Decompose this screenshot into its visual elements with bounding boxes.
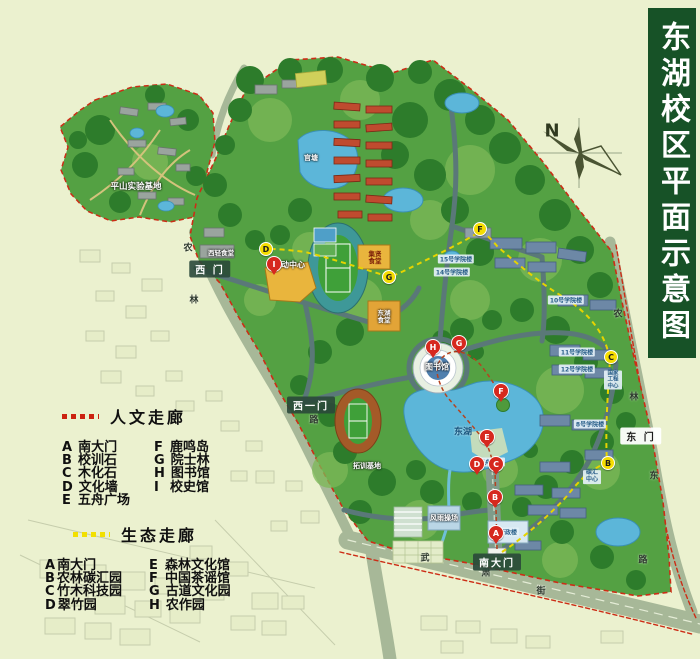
legend-humanities-col2: F鹿鸣岛 G院士林 H图书馆 I校史馆 bbox=[154, 441, 210, 507]
street-char-west: 林 bbox=[189, 293, 198, 306]
academic-building-label: 8号学院楼 bbox=[574, 420, 606, 429]
academic-building-label: 15号学院楼 bbox=[438, 255, 474, 264]
poster-title: 东湖校区平面示意图 bbox=[657, 21, 687, 345]
map-pin-red-H[interactable]: H bbox=[425, 339, 441, 355]
street-char-west: 路 bbox=[309, 413, 318, 426]
legend-item: E五舟广场 bbox=[62, 494, 154, 507]
street-char-west: 农 bbox=[183, 241, 192, 254]
street-char-south: 武 bbox=[420, 551, 429, 564]
academic-building-label: 11号学院楼 bbox=[559, 348, 595, 357]
windrain-ground-label: 风雨操场 bbox=[430, 513, 458, 523]
legend-item: C竹木科技园 bbox=[45, 585, 149, 598]
legend-item: D翠竹园 bbox=[45, 599, 149, 612]
title-banner: 东湖校区平面示意图 bbox=[648, 8, 696, 358]
ecology-dash-swatch bbox=[73, 532, 110, 537]
legend-item: D文化墙 bbox=[62, 481, 154, 494]
gate-label-west: 西 门 bbox=[189, 261, 230, 278]
legend-item: H图书馆 bbox=[154, 467, 210, 480]
engineering-center-label: 国家工程中心 bbox=[604, 371, 622, 390]
legend-ecology-title: 生态走廊 bbox=[121, 522, 197, 546]
street-char-east: 林 bbox=[629, 390, 638, 403]
legend-ecology: 生态走廊 A南大门 B农林碳汇园 C竹木科技园 D翠竹园 E森林文化馆 F中国茶… bbox=[45, 522, 231, 612]
map-pin-red-F[interactable]: F bbox=[493, 383, 509, 399]
tuoxun-base-label: 拓训基地 bbox=[353, 461, 381, 471]
legend-item: H农作园 bbox=[149, 599, 231, 612]
academic-building-label: 10号学院楼 bbox=[548, 296, 584, 305]
guantang-pond-label: 官塘 bbox=[304, 153, 318, 163]
map-pin-red-B[interactable]: B bbox=[487, 489, 503, 505]
legend-item: C木化石 bbox=[62, 467, 154, 480]
jixian-canteen-label: 集贤食堂 bbox=[367, 251, 383, 265]
legend-humanities-col1: A南大门 B校训石 C木化石 D文化墙 E五舟广场 bbox=[62, 441, 154, 507]
compass-north-label: N bbox=[544, 121, 559, 142]
legend-ecology-col2: E森林文化馆 F中国茶谣馆 G古道文化园 H农作园 bbox=[149, 559, 231, 612]
legend-item: I校史馆 bbox=[154, 481, 210, 494]
map-pin-yellow-B[interactable]: B bbox=[601, 456, 615, 470]
map-pin-red-E[interactable]: E bbox=[479, 429, 495, 445]
donghu-canteen-label: 东湖食堂 bbox=[376, 310, 392, 324]
east-lake-label: 东湖 bbox=[454, 425, 472, 438]
library-label: 图书馆 bbox=[425, 362, 449, 373]
pingshan-base-label: 平山实验基地 bbox=[110, 180, 161, 192]
sports-courts bbox=[314, 228, 336, 256]
xiqing-canteen-label: 西轻食堂 bbox=[208, 247, 234, 257]
gate-label-south: 南大门 bbox=[473, 554, 521, 571]
map-pin-red-A[interactable]: A bbox=[488, 525, 504, 541]
street-char-south: 街 bbox=[536, 584, 545, 597]
legend-item: G古道文化园 bbox=[149, 585, 231, 598]
map-pin-yellow-G[interactable]: G bbox=[382, 270, 396, 284]
map-pin-red-C[interactable]: C bbox=[488, 456, 504, 472]
legend-ecology-col1: A南大门 B农林碳汇园 C竹木科技园 D翠竹园 bbox=[45, 559, 149, 612]
street-char-east: 农 bbox=[613, 307, 622, 320]
legend-humanities-title: 人文走廊 bbox=[110, 404, 186, 428]
gate-label-east: 东 门 bbox=[620, 428, 661, 445]
legend-humanities: 人文走廊 A南大门 B校训石 C木化石 D文化墙 E五舟广场 F鹿鸣岛 G院士林… bbox=[62, 404, 210, 507]
south-stadium bbox=[335, 389, 381, 453]
academic-building-label: 14号学院楼 bbox=[434, 268, 470, 277]
campus-map-poster: 东湖校区平面示意图 N 西 门 西一门 东 门 南大门 平山实验基地 西轻食堂 … bbox=[0, 0, 700, 659]
academic-building-label: 12号学院楼 bbox=[559, 365, 595, 374]
pingshan-area bbox=[60, 84, 215, 222]
street-char-east: 东 bbox=[649, 469, 658, 482]
map-pin-yellow-F[interactable]: F bbox=[473, 222, 487, 236]
gate-label-west-one: 西一门 bbox=[287, 397, 335, 414]
map-pin-yellow-D[interactable]: D bbox=[259, 242, 273, 256]
street-char-east: 路 bbox=[638, 553, 647, 566]
humanities-dash-swatch bbox=[62, 414, 99, 419]
map-pin-yellow-C[interactable]: C bbox=[604, 350, 618, 364]
map-pin-red-D[interactable]: D bbox=[469, 456, 485, 472]
carbon-center-label: 碳汇中心 bbox=[583, 470, 601, 484]
map-pin-red-I[interactable]: I bbox=[266, 256, 282, 272]
map-pin-red-G[interactable]: G bbox=[451, 335, 467, 351]
